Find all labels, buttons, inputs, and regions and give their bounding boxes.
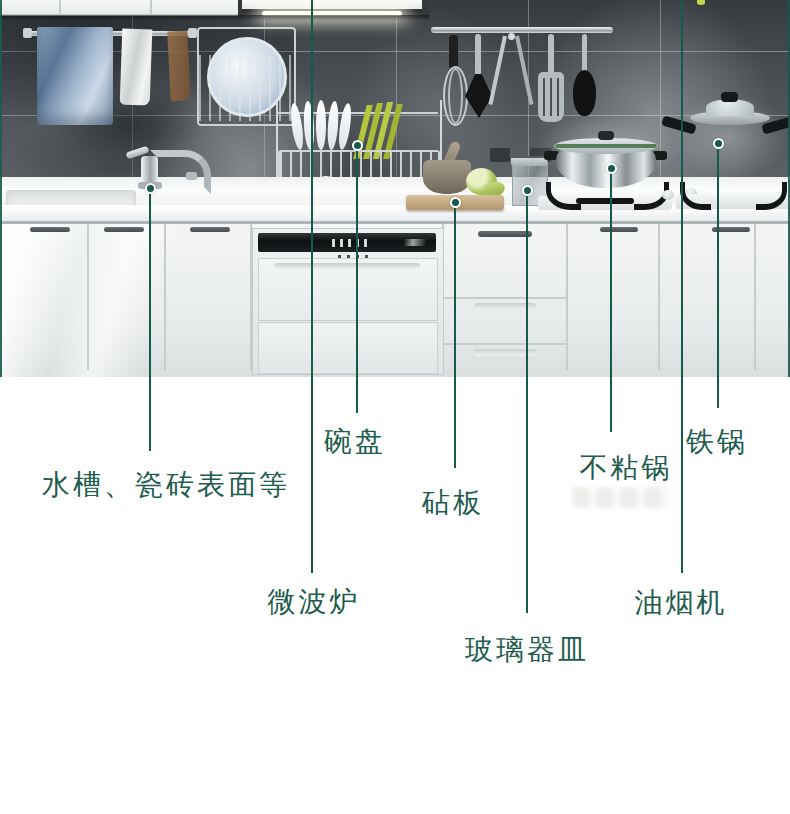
cutting-board-line — [454, 202, 456, 468]
sink-tile-surfaces-line — [149, 188, 151, 451]
nonstick-pan-label: 不粘锅 — [580, 454, 673, 482]
glassware-label: 玻璃器皿 — [465, 636, 589, 664]
iron-pot-label: 铁锅 — [686, 428, 748, 456]
glassware-dot — [522, 185, 533, 196]
sink-tile-surfaces-dot — [145, 183, 156, 194]
microwave-line — [311, 0, 313, 573]
callout-layer: 水槽、瓷砖表面等碗盘微波炉砧板玻璃器皿不粘锅油烟机铁锅 — [0, 0, 790, 814]
iron-pot-line — [717, 143, 719, 408]
range-hood-label: 油烟机 — [635, 589, 728, 617]
nonstick-pan-line — [610, 168, 612, 432]
dishes-label: 碗盘 — [324, 428, 386, 456]
kitchen-care-infographic: 水槽、瓷砖表面等碗盘微波炉砧板玻璃器皿不粘锅油烟机铁锅 — [0, 0, 790, 814]
cutting-board-dot — [450, 197, 461, 208]
range-hood-line — [681, 0, 683, 573]
glassware-line — [526, 190, 528, 613]
iron-pot-dot — [713, 138, 724, 149]
dishes-dot — [352, 140, 363, 151]
dishes-line — [356, 145, 358, 413]
nonstick-pan-dot — [606, 163, 617, 174]
sink-tile-surfaces-label: 水槽、瓷砖表面等 — [42, 471, 290, 499]
microwave-label: 微波炉 — [268, 588, 361, 616]
cutting-board-label: 砧板 — [422, 489, 484, 517]
